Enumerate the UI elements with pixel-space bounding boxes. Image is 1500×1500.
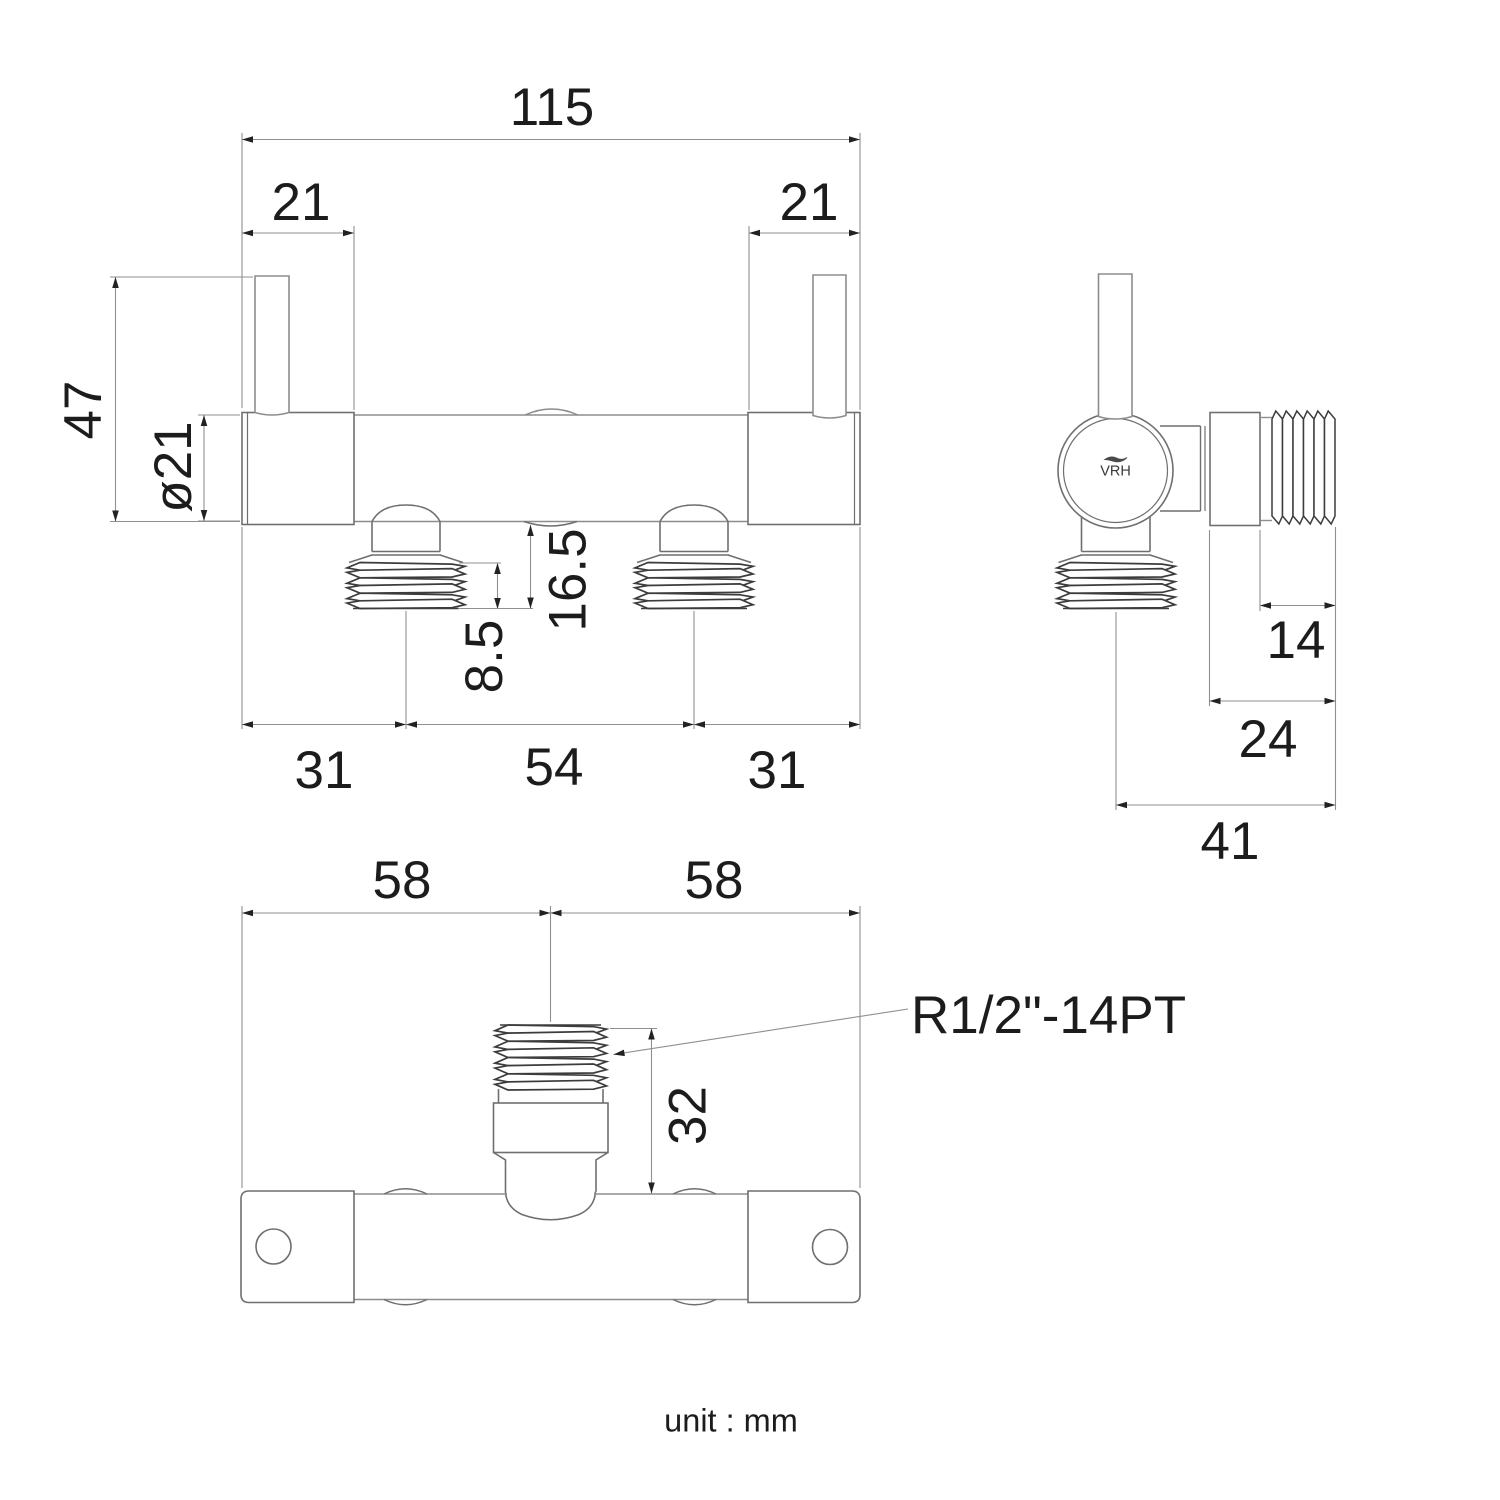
svg-text:31: 31: [748, 741, 807, 800]
svg-text:8.5: 8.5: [455, 620, 514, 694]
svg-text:14: 14: [1267, 611, 1326, 670]
svg-text:16.5: 16.5: [539, 528, 598, 631]
svg-text:31: 31: [295, 741, 354, 800]
svg-text:47: 47: [54, 381, 113, 440]
svg-text:32: 32: [659, 1086, 718, 1145]
svg-text:R1/2"-14PT: R1/2"-14PT: [911, 986, 1186, 1045]
svg-text:58: 58: [373, 851, 432, 910]
svg-text:21: 21: [272, 173, 331, 232]
svg-text:VRH: VRH: [1100, 464, 1131, 480]
svg-text:24: 24: [1239, 710, 1298, 769]
svg-text:58: 58: [685, 851, 744, 910]
svg-text:21: 21: [780, 173, 839, 232]
svg-text:115: 115: [510, 78, 595, 137]
svg-text:41: 41: [1201, 812, 1260, 871]
svg-text:unit : mm: unit : mm: [664, 1403, 798, 1439]
svg-text:54: 54: [525, 738, 584, 797]
svg-text:ø21: ø21: [144, 421, 203, 512]
